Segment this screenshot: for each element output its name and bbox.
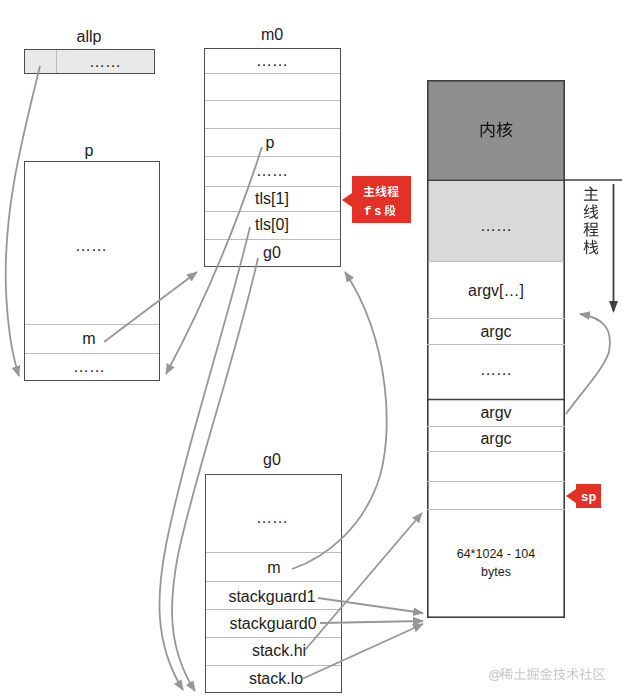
svg-text:argc: argc [480,430,511,447]
svg-text:fs: fs [364,205,384,219]
svg-text:……: …… [256,52,288,69]
svg-text:m: m [267,559,280,576]
svg-text:allp: allp [77,28,102,45]
svg-text:@: @ [488,667,502,682]
svg-text:……: …… [89,53,121,70]
svg-text:stackguard0: stackguard0 [229,615,316,632]
svg-text:……: …… [480,361,512,378]
svg-text:64*1024 - 104: 64*1024 - 104 [457,547,536,561]
svg-text:……: …… [75,237,107,254]
svg-text:……: …… [256,509,288,526]
svg-text:bytes: bytes [481,565,511,579]
svg-text:p: p [266,134,275,151]
svg-text:stack.lo: stack.lo [249,670,303,687]
svg-text:argv[…]: argv[…] [468,282,524,299]
svg-text:……: …… [256,162,288,179]
svg-text:sp: sp [581,490,597,505]
svg-text:tls[1]: tls[1] [255,190,289,207]
svg-text:argc: argc [480,323,511,340]
svg-text:p: p [85,142,94,159]
svg-text:m0: m0 [261,26,283,43]
svg-text:argv: argv [480,404,511,421]
svg-text:……: …… [73,358,105,375]
svg-text:……: …… [480,217,512,234]
svg-text:stack.hi: stack.hi [252,642,306,659]
svg-text:m: m [82,330,95,347]
svg-text:g0: g0 [263,244,281,261]
svg-text:stackguard1: stackguard1 [228,588,315,605]
svg-text:g0: g0 [263,451,281,468]
svg-text:tls[0]: tls[0] [255,216,289,233]
